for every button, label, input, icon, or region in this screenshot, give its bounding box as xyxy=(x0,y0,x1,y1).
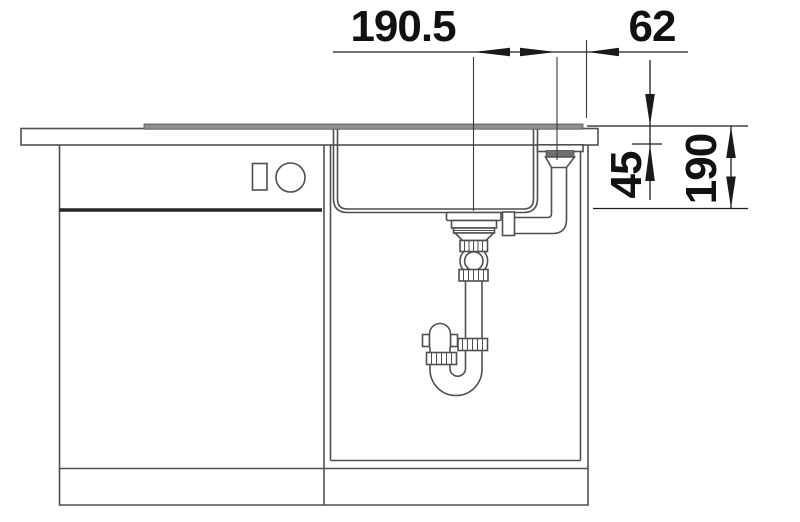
dim-label-45: 45 xyxy=(602,151,651,198)
arrow-right-62 xyxy=(588,48,620,57)
arrow-left-190-5 xyxy=(474,48,511,57)
siphon-trap xyxy=(423,324,488,396)
cabinet xyxy=(60,145,589,505)
arrow-down-45 xyxy=(645,94,655,126)
elbow-outer xyxy=(515,220,567,234)
drawer-front-knob-symbol xyxy=(276,163,305,192)
trap-outer-bend xyxy=(430,370,482,396)
technical-drawing-canvas: 190.5 62 45 190 xyxy=(0,0,800,522)
strainer-nut-lower xyxy=(459,270,488,282)
dim-label-62: 62 xyxy=(629,2,676,51)
arrow-down-190 xyxy=(726,177,736,209)
trap-dome-knob-left xyxy=(423,335,430,347)
trap-dome-cap xyxy=(430,324,451,348)
elbow-inner xyxy=(515,214,552,218)
trap-inner-bend xyxy=(450,369,466,377)
overflow-standpipe xyxy=(503,145,584,236)
trap-nut-right xyxy=(458,339,488,351)
sink-section-drawing: 190.5 62 45 190 xyxy=(0,0,800,522)
overflow-flange xyxy=(546,151,574,158)
strainer-taper xyxy=(455,233,494,241)
strainer-step xyxy=(452,221,497,229)
strainer-nut-upper xyxy=(460,241,488,252)
elbow-connector-sleeve xyxy=(503,212,515,236)
dim-label-190-5: 190.5 xyxy=(350,2,456,51)
sink-rim xyxy=(144,124,583,129)
drawer-front-rect-symbol xyxy=(253,164,268,191)
dim-label-190: 190 xyxy=(677,134,726,204)
drain-strainer xyxy=(447,213,502,339)
arrow-right-190-5 xyxy=(520,48,556,57)
overflow-funnel xyxy=(546,157,575,168)
dimension-annotations: 190.5 62 45 190 xyxy=(333,2,748,211)
strainer-flange xyxy=(447,213,502,221)
worktop-slab xyxy=(21,129,598,146)
trap-nut-left xyxy=(427,353,457,365)
worktop xyxy=(21,124,598,145)
trap-dome-knob-right xyxy=(451,335,458,347)
arrow-up-190 xyxy=(726,127,736,159)
dim-horizontal-62: 62 xyxy=(587,2,676,118)
